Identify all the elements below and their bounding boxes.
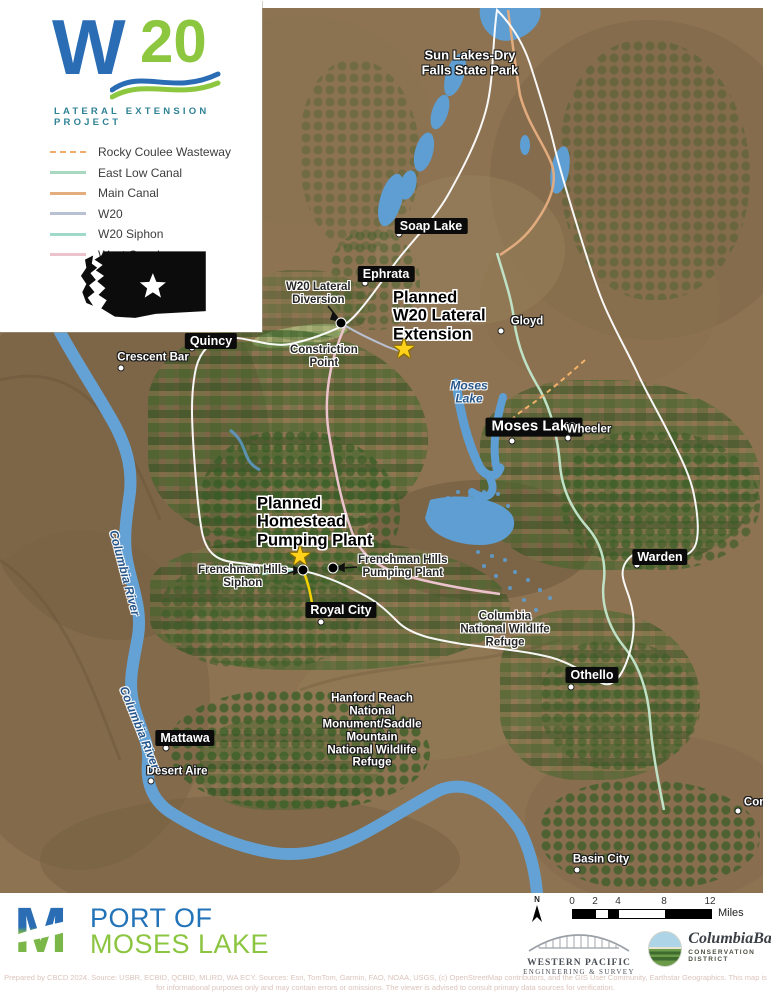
legend-panel: W 20 LATERAL EXTENSION PROJECT Rocky Cou… (0, 0, 262, 332)
frenchman-hills-siphon-point (298, 565, 309, 576)
scale-tick-8: 8 (661, 896, 667, 907)
map-label-frenchman-hills-siphon: Frenchman HillsSiphon (198, 564, 287, 590)
legend-item-3: W20 (50, 204, 262, 225)
map-label-othello: Othello (565, 667, 618, 683)
page: Sun Lakes-DryFalls State ParkSoap LakeEp… (0, 0, 771, 1000)
map-label-gloyd: Gloyd (511, 316, 544, 329)
w20-logo: W 20 (52, 10, 222, 102)
scale-tick-0: 0 (569, 896, 575, 907)
north-arrow-icon: N (530, 895, 544, 929)
field-circle-icon (648, 931, 682, 967)
legend-label: Main Canal (98, 186, 159, 200)
map-label-hanford-reach: Hanford ReachNationalMonument/SaddleMoun… (322, 692, 421, 769)
legend-label: East Low Canal (98, 166, 182, 180)
legend-label: W20 (98, 207, 123, 221)
map-label-basin-city: Basin City (573, 854, 629, 867)
town-dot-basin-city (574, 867, 581, 874)
map-disclaimer: Prepared by CBCD 2024. Source: USBR, ECB… (0, 973, 771, 993)
legend-swatch (50, 192, 86, 195)
map-label-columbia-national-wildlife-refuge: ColumbiaNational WildlifeRefuge (460, 611, 549, 650)
w20-logo-20: 20 (140, 12, 207, 72)
scale-bar-unit: Miles (718, 907, 744, 919)
wave-swoosh-icon (110, 66, 222, 102)
disclaimer-line2: for informational purposes only and may … (0, 983, 771, 993)
scale-tick-4: 4 (615, 896, 621, 907)
town-dot-moses-lake (509, 438, 516, 445)
scale-tick-2: 2 (592, 896, 598, 907)
columbia-basin-name: ColumbiaBasin (688, 931, 771, 947)
legend-swatch (50, 151, 86, 153)
legend-swatch (50, 212, 86, 215)
legend-swatch (50, 233, 86, 236)
scale-segment-4 (665, 910, 711, 918)
scale-bar-ticks: 024812 (572, 896, 722, 906)
town-dot-gloyd (498, 328, 505, 335)
map-label-crescent-bar: Crescent Bar (117, 352, 189, 365)
legend-item-0: Rocky Coulee Wasteway (50, 142, 262, 163)
w20-lateral-diversion-point (336, 318, 347, 329)
disclaimer-line1: Prepared by CBCD 2024. Source: USBR, ECB… (0, 973, 771, 983)
map-label-constriction-point: ConstrictionPoint (290, 344, 358, 370)
map-label-connell: Connell (744, 797, 763, 810)
legend-item-2: Main Canal (50, 183, 262, 204)
washington-state-icon (72, 246, 212, 322)
legend-swatch (50, 171, 86, 174)
map-label-mattawa: Mattawa (155, 730, 214, 746)
scale-segment-3 (619, 910, 665, 918)
frenchman-hills-pumping-plant-point (328, 563, 339, 574)
map-label-w20-lateral-diversion: W20 LateralDiversion (286, 281, 351, 307)
map-label-sun-lakes-dry-falls: Sun Lakes-DryFalls State Park (422, 48, 519, 77)
scale-segment-0 (573, 910, 596, 918)
footer: M PORT OF MOSES LAKE N 024812 Miles (0, 893, 771, 1000)
map-label-columbia-river-south: Columbia River (116, 685, 161, 772)
port-m-icon: M (14, 901, 80, 961)
legend-item-1: East Low Canal (50, 163, 262, 184)
map-label-royal-city: Royal City (305, 602, 376, 618)
planned-w20-lateral-extension-star: ★ (392, 336, 415, 362)
columbia-basin-logo: ColumbiaBasin CONSERVATION DISTRICT (648, 931, 771, 967)
scale-segment-1 (596, 910, 608, 918)
map-label-wheeler: Wheeler (567, 424, 612, 437)
map-label-warden: Warden (632, 549, 687, 565)
map-label-columbia-river-north: Columbia River (106, 529, 142, 618)
project-subtitle: LATERAL EXTENSION PROJECT (54, 106, 262, 128)
town-dot-othello (568, 684, 575, 691)
map-label-frenchman-hills-pumping-plant: Frenchman HillsPumping Plant (358, 554, 447, 580)
town-dot-crescent-bar (118, 365, 125, 372)
western-pacific-logo: WESTERN PACIFIC ENGINEERING & SURVEY (520, 929, 638, 976)
legend-item-4: W20 Siphon (50, 224, 262, 245)
bridge-arch-icon (524, 929, 634, 953)
port-logo-line2: MOSES LAKE (90, 931, 269, 957)
scale-tick-12: 12 (704, 896, 715, 907)
scale-bar-group: N 024812 Miles (520, 895, 760, 927)
map-label-soap-lake: Soap Lake (395, 218, 468, 234)
columbia-basin-tagline: CONSERVATION DISTRICT (688, 949, 771, 963)
map-label-quincy: Quincy (185, 333, 237, 349)
port-of-moses-lake-logo: M PORT OF MOSES LAKE (14, 901, 269, 961)
port-logo-line1: PORT OF (90, 905, 269, 931)
town-dot-connell (735, 808, 742, 815)
legend-label: Rocky Coulee Wasteway (98, 145, 231, 159)
scale-segment-2 (608, 910, 620, 918)
town-dot-royal-city (318, 619, 325, 626)
map-label-moses-lake-water: MosesLake (450, 380, 487, 407)
legend-label: W20 Siphon (98, 227, 163, 241)
western-pacific-name: WESTERN PACIFIC (520, 958, 638, 968)
map-label-planned-homestead-pumping-plant: PlannedHomesteadPumping Plant (257, 494, 373, 549)
scale-bar (572, 909, 712, 919)
map-label-ephrata: Ephrata (358, 266, 415, 282)
town-dot-desert-aire (148, 778, 155, 785)
